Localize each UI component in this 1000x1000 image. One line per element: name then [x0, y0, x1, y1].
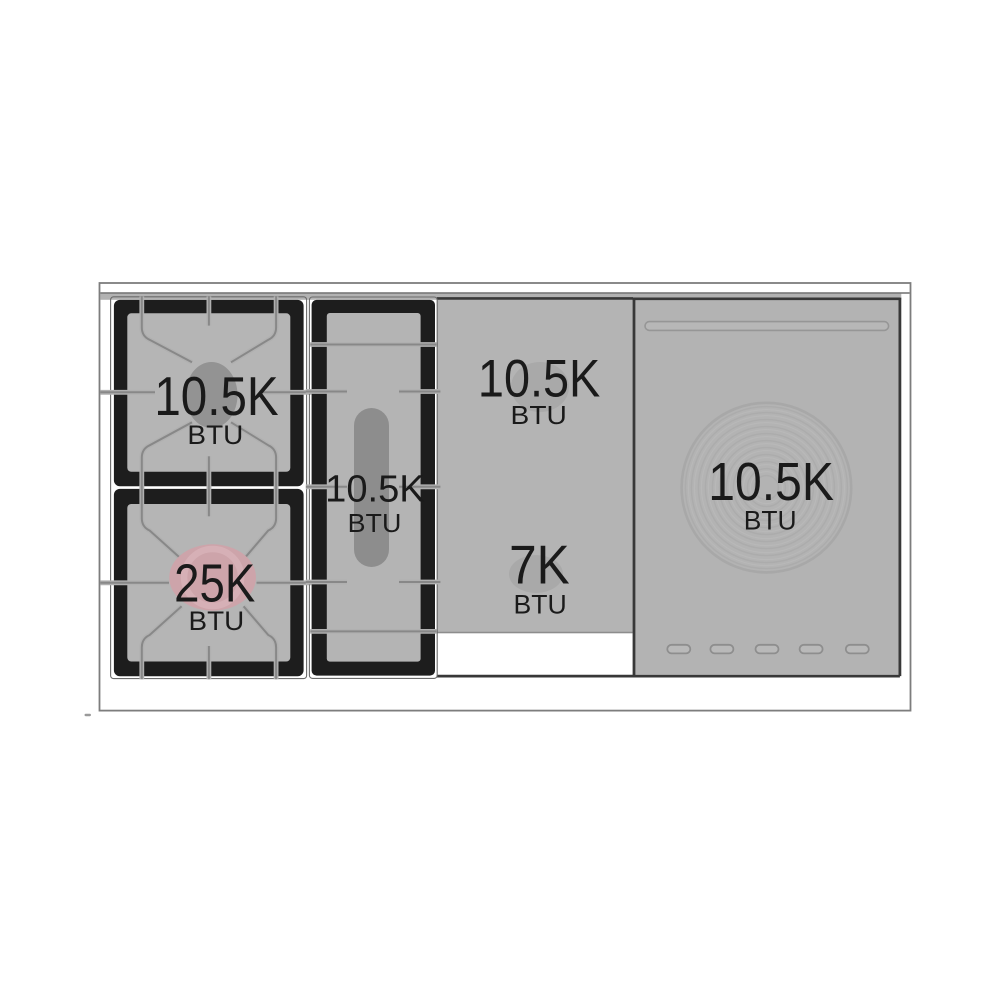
svg-text:10.5K: 10.5K — [325, 468, 425, 510]
svg-text:BTU: BTU — [511, 400, 567, 430]
svg-text:BTU: BTU — [348, 510, 402, 538]
svg-text:BTU: BTU — [513, 590, 566, 620]
svg-text:BTU: BTU — [189, 606, 245, 636]
svg-text:10.5K: 10.5K — [154, 365, 279, 427]
svg-text:7K: 7K — [509, 534, 570, 596]
svg-text:BTU: BTU — [744, 506, 797, 536]
svg-text:BTU: BTU — [187, 420, 243, 450]
svg-text:10.5K: 10.5K — [708, 452, 834, 512]
